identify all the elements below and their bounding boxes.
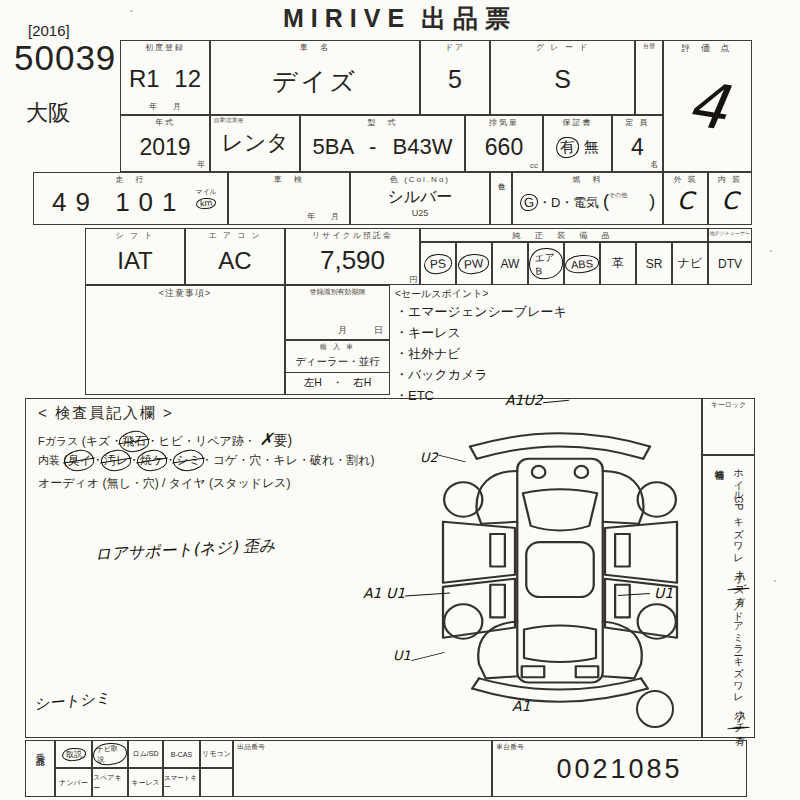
doors-value: 5 [421,65,489,94]
scan-noise [770,250,772,252]
displacement-cell: 排気量 660 cc [465,115,543,172]
import-dealer-parallel: ディーラー・並行 [286,355,389,369]
fglass-mid: ・ヒビ・リペア跡・ [146,434,255,448]
damage-mark-rear: A1 [512,698,530,714]
capacity-value: 4 [613,134,662,161]
fuel-cell: 燃 料 G・D・電気 (その他) [512,172,663,225]
damage-mark-left-door: A1 U1 [363,585,450,601]
sales-point-item: 社外ナビ [408,346,461,361]
equip-navi: ナビ [678,255,703,272]
scan-noise [130,10,133,12]
car-history-note: 自家\営業用 [211,116,299,124]
auction-site: 大阪 [26,98,70,128]
strip-wheel-text: ホイル・CPキズ ワレ [733,462,744,558]
score-cell: 評 価 点 4 [663,40,752,172]
equip-cell-sr: SR [636,242,672,285]
equip-aw: AW [501,257,520,271]
equip-sr: SR [646,257,663,271]
handover-smart-key: スマートキー [164,774,199,792]
strip-hand-small-dent-mark: 有 [727,727,750,731]
handover-number-plate-cell: ナンバー [55,768,92,797]
handover-spare-key-cell: スペアキー [92,768,128,797]
model-year-cell: 年式 2019 年 [120,115,210,172]
mileage-unit-km-circled: km [196,197,217,209]
listing-number-label: 出品番号 [234,741,491,752]
grade-label: グ レ ー ド [491,41,634,53]
import-box: 輸 入 車 ディーラー・並行 左H ・ 右H [285,340,390,395]
aircon-label: エ ア コ ン [186,229,284,241]
shift-cell: シ フ ト IAT [85,228,185,285]
handover-rom-sd: ロム/SD [133,749,159,759]
recycle-fee-unit: 円 [409,274,417,285]
chassis-number-value: 0021085 [493,754,746,785]
warranty-cell: 保証書 有 無 [543,115,612,172]
interior-struck-item: 汚レ [104,452,128,469]
handover-label-cell: 受渡品 [25,740,55,797]
interior-grade-label: 内 装 [709,173,751,185]
chassis-number-label: 車台番号 [493,741,746,752]
handover-bcas-cell: B-CAS [163,740,200,768]
handover-manual-cell: 取説 [55,740,92,768]
first-registration-cell: 初度登録 R1 12 年 月 [120,40,210,115]
damage-code: U1 [393,648,411,663]
handover-number-plate: ナンバー [59,778,88,788]
shaken-label: 車 検 [229,173,349,185]
bullet-icon: ・ [395,367,408,382]
fglass-head: Fガラス [38,435,79,447]
interior-head: 内装 [38,454,60,466]
interior-struck-item: 臭イ [67,452,91,469]
model-code-value: 5BA - B43W [301,134,464,160]
capacity-unit: 名 [650,159,658,170]
notice-box-label: <注意事項> [86,286,284,300]
doors-cell: ドア 5 [420,40,490,115]
model-year-unit: 年 [197,159,205,170]
car-name-label: 車 名 [211,41,419,53]
damage-code: U1 [654,585,673,601]
shift-value: IAT [86,247,184,275]
recycle-fee-value: 7,590 [286,245,419,276]
handover-smart-key-cell: スマートキー [163,768,200,797]
oem-equipment-label: 純 正 装 備 品 [421,229,707,241]
doc-type-label: 出品票 [421,4,517,32]
equip-cell-navi: ナビ [672,242,708,285]
sheet-title: MIRIVE出品票 [225,2,575,35]
fglass-pre: (キズ・ [82,434,123,448]
import-lh-rh: 左H ・ 右H [286,376,389,390]
inspector-audio-line: オーディオ (無し・穴) / タイヤ (スタッドレス) [38,475,291,492]
aircon-value: AC [186,247,284,275]
first-registration-label: 初度登録 [121,41,209,53]
strip-mirror-text: ／ドアミラーキズ ワレ [733,594,744,698]
shaken-cell: 車 検 年 月 [228,172,350,225]
damage-code: U2 [420,450,438,465]
registration-deadline-label: 登録識別有効期限 [286,286,389,297]
capacity-cell: 定 員 4 名 [612,115,663,172]
sales-points-label: <セールスポイント> [395,287,755,301]
keylock-label: キーロック [703,399,754,410]
narrow-column-cell: 台替 [635,40,663,115]
interior-grade-cell: 内 装 C [708,172,752,225]
damage-mark-front: A1U2 [505,392,569,408]
equip-cell-leather: 革 [600,242,636,285]
fglass-struck-item: 飛石 [122,433,146,450]
registration-deadline-units: 月 日 [286,324,389,337]
damage-mark-rear-left: U1 [393,648,445,663]
inspector-interior-line: 内装 (臭イ・汚レ・焼ケ・シミ・コゲ・穴・キレ・破れ・割れ) [38,452,374,469]
color-value: シルバー [351,187,489,208]
handover-remote: リモコン [202,749,231,759]
strip-hand-small-scratch: 小キズ [732,563,745,588]
bullet-icon: ・ [395,325,408,340]
fglass-tail: 要) [273,432,292,448]
listing-number-box: 出品番号 [233,740,492,797]
warranty-circled-option: 有 [556,136,580,159]
mileage-label: 走 行 [34,173,227,185]
displacement-label: 排気量 [466,116,542,128]
car-name-value: デイズ [211,65,419,98]
equip-cell-dtv: DTV [708,242,752,285]
equip-cell-airbag: エアB [528,242,564,285]
sales-point-item: キーレス [408,325,461,340]
registration-deadline-box: 登録識別有効期限 月 日 [285,285,390,340]
damage-code: A1U2 [505,392,543,408]
auction-year-bracket: [2016] [28,22,70,39]
exterior-grade-cell: 外 装 C [663,172,708,225]
bullet-icon: ・ [395,304,408,319]
auction-sheet: MIRIVE出品票 [2016] 50039 大阪 初度登録 R1 12 年 月… [0,0,800,800]
handover-bcas: B-CAS [171,751,192,758]
equip-airbag: エアB [528,247,564,280]
recycle-fee-label: リサイクル預託金 [286,229,419,241]
equip-pw: PW [458,252,491,274]
color-cell: 色 (Col.No) シルバー U25 [350,172,490,225]
color-change-label: 色替 [496,177,506,207]
score-label: 評 価 点 [664,41,751,55]
warranty-label: 保証書 [544,116,611,128]
first-registration-units: 年 月 [121,101,209,112]
handover-navi-manual: ナビ取説 [92,742,127,766]
dtv-header-cell: 地デジチューナー [708,228,752,242]
interior-rest: コゲ・穴・キレ・破れ・割れ) [213,453,375,467]
notice-box: <注意事項> [85,285,285,395]
damage-code: A1 [512,698,530,714]
interior-struck-item: 焼ケ [140,452,164,469]
shift-label: シ フ ト [86,229,184,241]
model-code-cell: 型 式 5BA - B43W [300,115,465,172]
equip-abs: ABS [564,253,599,273]
mileage-cell: 走 行 49 101 マイル km [33,172,228,225]
sales-points-area: <セールスポイント> ・エマージェンシーブレーキ ・キーレス ・社外ナビ ・バッ… [395,287,755,395]
displacement-unit: cc [530,161,538,170]
handover-spare-key: スペアキー [93,773,127,793]
doors-label: ドア [421,41,489,53]
equip-dtv: DTV [718,257,742,271]
exterior-grade-label: 外 装 [664,173,707,185]
fglass-hand-x-mark: ✗ [259,429,273,449]
equip-cell-pw: PW [456,242,492,285]
handover-remote-cell: リモコン [200,740,233,768]
handover-label: 受渡品 [34,746,47,752]
fuel-label: 燃 料 [513,173,662,185]
handover-keyless-cell: キーレス [128,768,163,797]
first-registration-value: R1 12 [121,65,209,93]
model-year-value: 2019 [121,134,209,161]
recycle-fee-cell: リサイクル預託金 7,590 円 [285,228,420,285]
equip-leather: 革 [612,255,624,272]
right-damage-strip: ホイル・CPキズ ワレ 小キズ有 ／ドアミラーキズ ワレ 小ウチ有 補修有 [702,455,755,738]
bullet-icon: ・ [395,346,408,361]
fuel-circled-option: G [519,193,538,211]
handover-empty-cell [200,768,233,797]
keylock-box: キーロック [702,398,755,455]
fuel-other-label: その他 [609,192,627,198]
color-code: U25 [351,208,489,218]
warranty-plain-option: 無 [584,138,599,155]
displacement-value: 660 [466,134,542,161]
narrow-column-label: 台替 [636,41,662,51]
fuel-rest-options: ・D・電気 [538,195,599,210]
strip-hand-small-scratch-mark: 有 [727,587,750,591]
color-change-cell: 色替 [490,172,512,225]
handover-navi-manual-cell: ナビ取説 [92,740,128,768]
damage-mark-right-door: U1 [618,585,673,601]
damage-code: A1 U1 [363,585,405,601]
chassis-number-box: 車台番号 0021085 [492,740,747,797]
mileage-unit-mile: マイル [196,187,218,196]
equip-cell-abs: ABS [564,242,600,285]
score-value-handwritten: 4 [659,63,756,149]
auction-house-logo: MIRIVE [283,4,411,32]
equip-cell-ps: PS [420,242,456,285]
damage-mark-front-left: U2 [420,450,466,465]
model-year-label: 年式 [121,116,209,128]
shaken-units: 年 月 [229,211,349,222]
model-code-label: 型 式 [301,116,464,128]
sales-point-item: エマージェンシーブレーキ [408,304,567,319]
grade-cell: グ レ ー ド S [490,40,635,115]
exterior-grade-value: C [664,187,707,215]
oem-equipment-header: 純 正 装 備 品 [420,228,708,242]
inspector-title: < 検査員記入欄 > [38,404,174,423]
lot-number: 50039 [14,38,116,78]
equip-cell-aw: AW [492,242,528,285]
import-box-divider [286,372,389,373]
import-box-label: 輸 入 車 [286,341,389,352]
sales-point-item: バックカメラ [408,367,488,382]
car-history-value: レンタ [211,128,299,158]
handover-manual: 取説 [61,747,86,762]
inspector-stamp-circle [636,690,674,728]
grade-value: S [491,65,634,94]
aircon-cell: エ ア コ ン AC [185,228,285,285]
handover-rom-sd-cell: ロム/SD [128,740,163,768]
interior-struck-item: シミ [176,452,201,469]
car-history-cell: 自家\営業用 レンタ [210,115,300,172]
color-label: 色 (Col.No) [351,173,489,185]
fuel-paren-close: ) [649,191,655,211]
scan-noise [774,580,776,582]
interior-grade-value: C [709,187,751,215]
capacity-label: 定 員 [613,116,662,128]
inspector-fglass-line: Fガラス (キズ・飛石・ヒビ・リペア跡・ ✗要) [38,429,292,450]
equip-ps: PS [423,253,452,275]
dtv-header-label: 地デジチューナー [709,229,751,236]
car-name-cell: 車 名 デイズ [210,40,420,115]
mileage-value: 49 101 [52,187,186,218]
handover-keyless: キーレス [131,778,160,788]
strip-hand-small-dent: 小ウチ [732,702,745,727]
